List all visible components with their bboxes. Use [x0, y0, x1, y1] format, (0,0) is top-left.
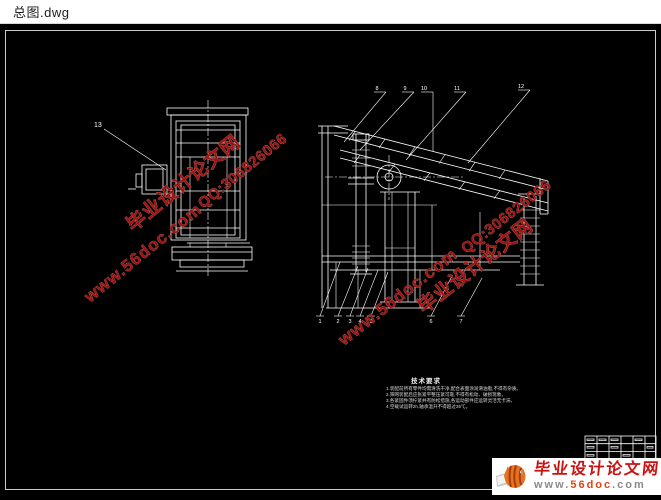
fish-book-logo-icon: [494, 460, 532, 494]
window-title-bar: 总图.dwg: [0, 0, 661, 24]
cad-drawing: 13: [0, 24, 661, 495]
callout-13: 13: [94, 122, 166, 170]
site-logo-name: 毕业设计论文网: [533, 462, 661, 478]
url-prefix: www.: [534, 479, 570, 491]
base-front: [172, 243, 252, 271]
item-number: 11: [454, 86, 460, 92]
drawing-frame: [6, 31, 656, 490]
notes-line: 1.装配前所有零件均需清洗干净,配合表面涂润滑油脂,不得有杂质。: [386, 385, 521, 392]
leader-lines-top: 8 9 10 11 12: [344, 84, 530, 163]
item-number: 10: [421, 86, 427, 92]
site-logo-banner[interactable]: 毕业设计论文网 www.56doc.com: [492, 458, 661, 495]
technical-notes: 技术要求 1.装配前所有零件均需清洗干净,配合表面涂润滑油脂,不得有杂质。 2.…: [386, 376, 521, 410]
site-logo-text: 毕业设计论文网 www.56doc.com: [534, 462, 660, 491]
item-number: 2: [336, 319, 339, 325]
item-number: 7: [459, 319, 462, 325]
notes-line: 4.空载试运转2h,轴承温升不得超过35℃。: [386, 403, 470, 410]
item-number: 8: [375, 86, 378, 92]
item-number: 12: [518, 84, 524, 90]
window-title: 总图.dwg: [13, 2, 69, 21]
notes-heading: 技术要求: [411, 376, 441, 385]
site-logo-url: www.56doc.com: [534, 480, 660, 491]
url-domain: 56doc: [570, 479, 612, 491]
app-window: { "window": { "title": "总图.dwg" }, "colo…: [0, 0, 661, 495]
watermarks: www.56doc.com 毕业设计论文网 QQ:306826066 www.5…: [80, 130, 555, 350]
cad-canvas[interactable]: 13: [0, 24, 661, 495]
url-suffix: .com: [612, 479, 646, 491]
vibrator-circle: [325, 155, 465, 200]
item-number: 6: [429, 319, 432, 325]
notes-line: 2.筛网装配后应张紧平整压紧可靠,不得有松动、破损现象。: [386, 391, 506, 398]
notes-line: 3.各紧固件须拧紧并有防松措施,各运动部件应运转灵活无卡滞。: [386, 397, 515, 404]
item-number: 1: [318, 319, 321, 325]
item-number: 9: [403, 86, 406, 92]
callout-13-label: 13: [94, 122, 102, 129]
